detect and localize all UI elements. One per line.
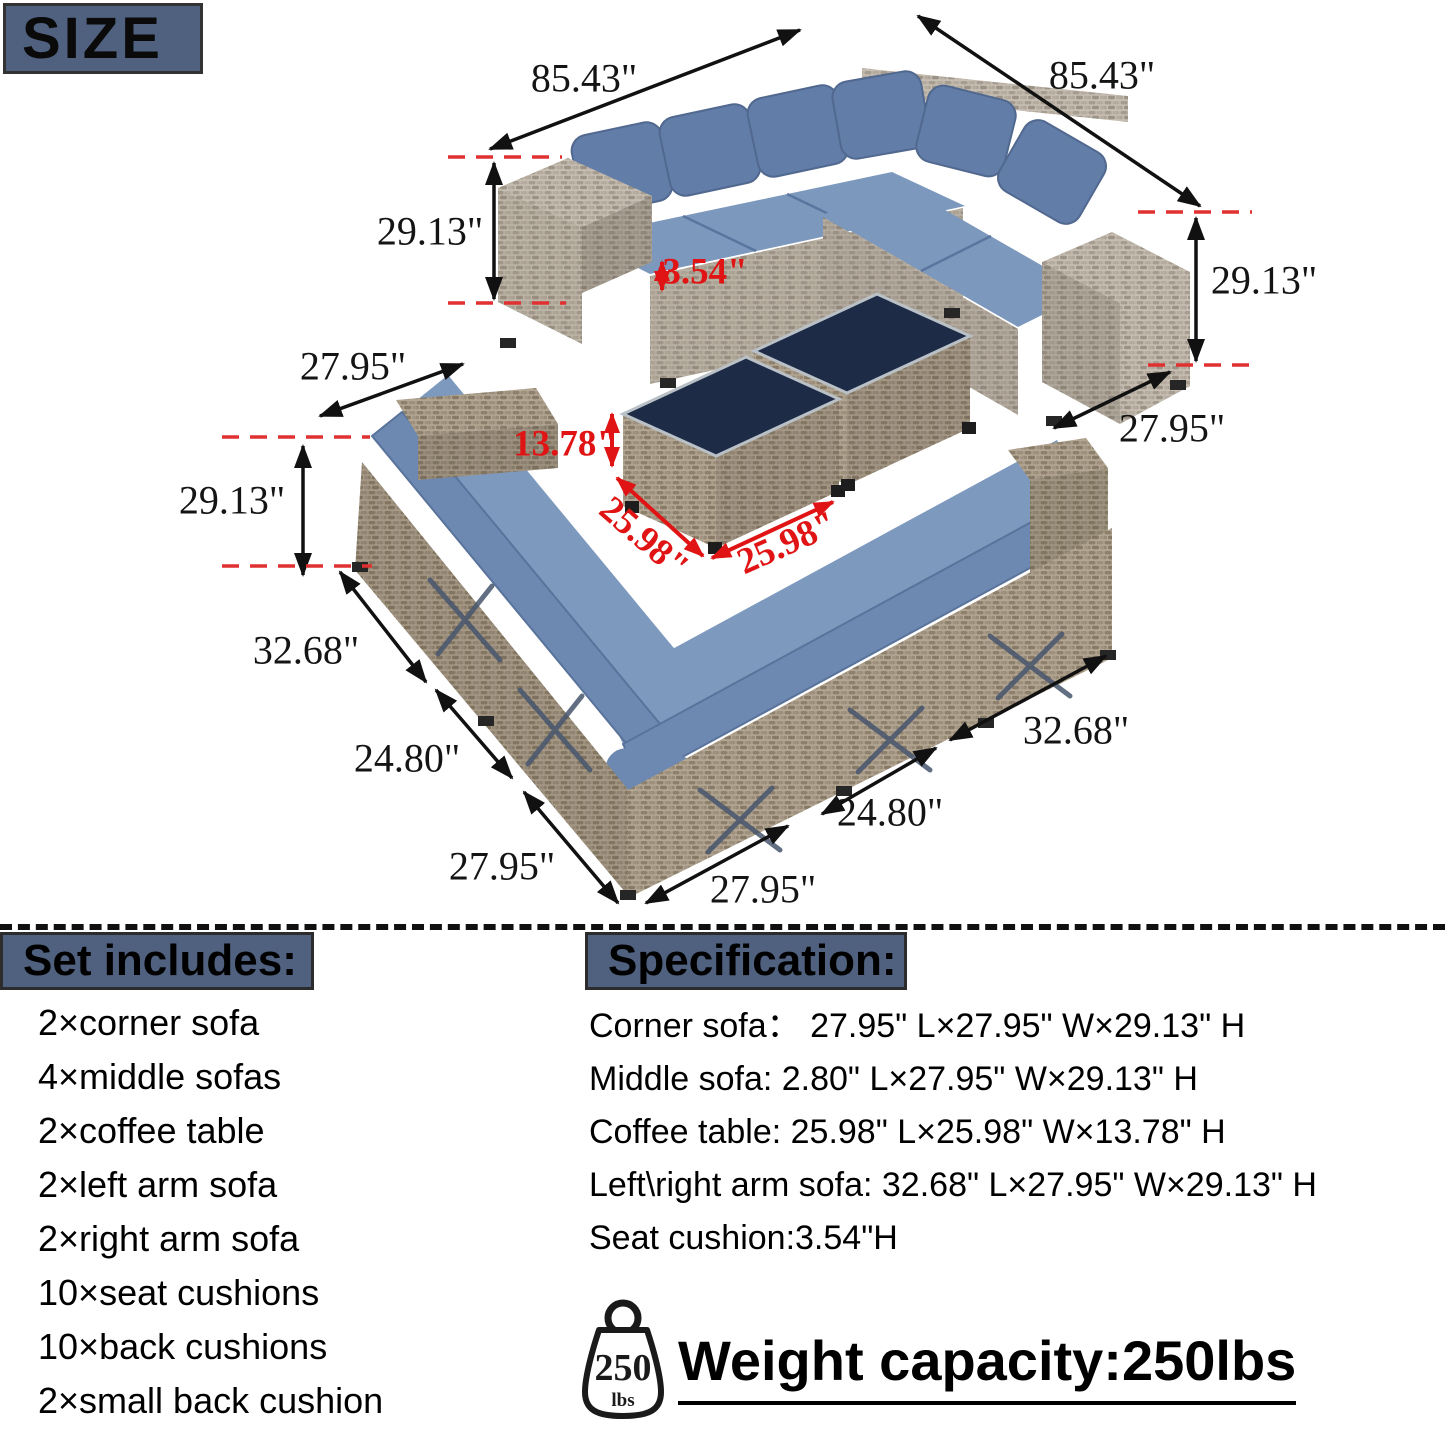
weight-icon-unit: lbs — [611, 1390, 634, 1411]
set-includes-item: 2×right arm sofa — [38, 1212, 383, 1266]
dimension-annotations: 85.43"85.43"29.13"3.54"29.13"27.95"27.95… — [0, 0, 1445, 935]
dim-top-width-right: 85.43" — [1049, 52, 1155, 99]
specification-item: Middle sofa: 2.80" L×27.95" W×29.13" H — [589, 1053, 1317, 1106]
set-includes-header: Set includes: — [0, 932, 314, 990]
dim-bottom-depth-left: 27.95" — [449, 843, 555, 890]
dim-bottom-height-left: 29.13" — [179, 477, 285, 524]
set-includes-item: 2×left arm sofa — [38, 1158, 383, 1212]
specification-item: Coffee table: 25.98" L×25.98" W×13.78" H — [589, 1106, 1317, 1159]
dim-coffee-table-width: 25.98" — [731, 502, 843, 584]
dim-bottom-arm-left: 32.68" — [253, 627, 359, 674]
specification-item: Corner sofa： 27.95" L×27.95" W×29.13" H — [589, 1000, 1317, 1053]
dim-top-height-left: 29.13" — [377, 208, 483, 255]
dim-bottom-seat-right: 24.80" — [837, 789, 943, 836]
set-includes-item: 2×coffee table — [38, 1104, 383, 1158]
specification-header: Specification: — [585, 932, 907, 990]
weight-icon: 250 lbs — [578, 1298, 668, 1424]
dim-coffee-table-length: 25.98" — [591, 488, 698, 589]
set-includes-item: 2×small back cushion — [38, 1374, 383, 1428]
dim-coffee-table-height: 13.78" — [513, 423, 617, 466]
dim-bottom-arm-right: 32.68" — [1023, 707, 1129, 754]
specification-item: Left\right arm sofa: 32.68" L×27.95" W×2… — [589, 1159, 1317, 1212]
dim-seat-thickness: 3.54" — [662, 251, 747, 294]
set-includes-list: 2×corner sofa4×middle sofas2×coffee tabl… — [38, 996, 383, 1428]
dim-top-depth-right: 27.95" — [1119, 405, 1225, 452]
dim-top-width-left: 85.43" — [531, 55, 637, 102]
set-includes-item: 4×middle sofas — [38, 1050, 383, 1104]
specification-list: Corner sofa： 27.95" L×27.95" W×29.13" HM… — [589, 1000, 1317, 1265]
weight-capacity-label: Weight capacity:250lbs — [678, 1328, 1296, 1405]
dim-top-depth-left: 27.95" — [300, 343, 406, 390]
set-includes-item: 10×back cushions — [38, 1320, 383, 1374]
weight-capacity: 250 lbs Weight capacity:250lbs — [578, 1290, 1438, 1440]
size-diagram: SIZE 85.43"85.43"29.13"3.54"29.13"27.95"… — [0, 0, 1445, 935]
dim-bottom-seat-left: 24.80" — [354, 735, 460, 782]
weight-icon-value: 250 — [595, 1347, 652, 1389]
dim-top-height-right: 29.13" — [1211, 257, 1317, 304]
set-includes-item: 2×corner sofa — [38, 996, 383, 1050]
set-includes-item: 10×seat cushions — [38, 1266, 383, 1320]
section-divider — [0, 924, 1445, 930]
dim-bottom-depth-center: 27.95" — [710, 866, 816, 913]
specification-item: Seat cushion:3.54"H — [589, 1212, 1317, 1265]
